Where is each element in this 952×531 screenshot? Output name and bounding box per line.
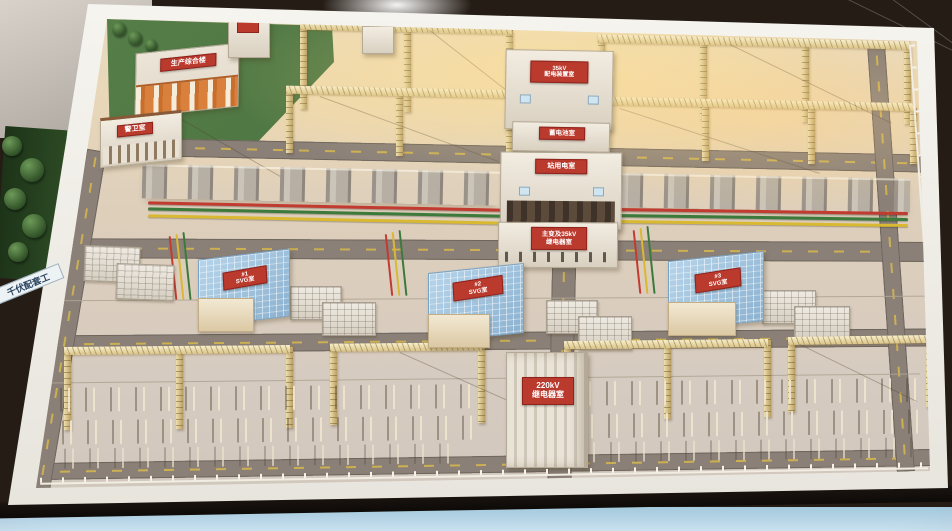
- guard-house-windows: [103, 139, 179, 165]
- transformer-row-east: [618, 173, 911, 213]
- transformer-relay-building: 主变及35kV 继电器室: [498, 222, 618, 269]
- sign-text: 站用电室: [547, 163, 575, 171]
- substation-yard: 生产综合楼 警卫室 35kV 配电装置室 蓄电池室 站用电室: [0, 0, 952, 531]
- switchgear-row: [558, 409, 920, 438]
- lattice-tower: [286, 89, 293, 153]
- switchgear-row: [62, 415, 480, 444]
- sign-line2: 继电器室: [546, 238, 572, 245]
- lattice-tower: [702, 103, 709, 161]
- relay-220kv-building: 220kV 继电器室: [506, 352, 588, 468]
- station-power-building: 站用电室: [500, 151, 623, 230]
- sign-text: 警卫室: [125, 125, 146, 135]
- relay-220kv-sign: 220kV 继电器室: [522, 377, 574, 405]
- equipment-rack: [322, 302, 376, 336]
- lattice-tower: [764, 339, 771, 417]
- svg1-sign: #1 SVG室: [223, 265, 268, 291]
- gantry-beam: [596, 97, 916, 112]
- tree: [128, 31, 142, 45]
- tree: [4, 188, 26, 210]
- svg3-building-wall: [668, 302, 736, 336]
- lattice-tower: [300, 25, 307, 109]
- tree: [2, 136, 22, 156]
- lattice-tower: [404, 28, 411, 112]
- switchgear-building: 35kV 配电装置室: [504, 49, 613, 131]
- admin-building-sign: 生产综合楼: [160, 53, 216, 72]
- transformer-row-west: [142, 164, 501, 205]
- tree: [8, 242, 28, 262]
- substation-model-photo: 生产综合楼 警卫室 35kV 配电装置室 蓄电池室 站用电室: [0, 0, 952, 531]
- svg2-building-wall: [428, 314, 490, 348]
- tree: [112, 22, 126, 36]
- gantry-beam: [64, 345, 290, 355]
- svg1-building-wall: [198, 298, 254, 332]
- window: [519, 187, 530, 196]
- svg3-sign: #3 SVG室: [695, 267, 742, 293]
- lattice-tower: [808, 106, 815, 164]
- sign-text: 生产综合楼: [171, 57, 206, 68]
- sign-line2: SVG室: [469, 287, 488, 296]
- guard-house: 警卫室: [100, 110, 182, 169]
- relay-building-windows: [505, 252, 611, 263]
- window: [593, 187, 604, 196]
- admin-building: 生产综合楼: [134, 42, 239, 117]
- busbar-yellow: [612, 220, 908, 227]
- tree: [145, 39, 157, 51]
- tree: [20, 158, 44, 182]
- battery-building: 蓄电池室: [512, 121, 611, 153]
- battery-building-sign: 蓄电池室: [539, 127, 585, 141]
- window: [520, 94, 531, 103]
- sign-line2: SVG室: [709, 279, 728, 288]
- tree: [22, 214, 46, 238]
- small-outbuilding: [362, 26, 394, 54]
- lattice-tower: [478, 343, 485, 423]
- switchgear-row: [556, 378, 920, 406]
- sign-text: 蓄电池室: [549, 130, 575, 137]
- sign-line2: 继电器室: [532, 391, 564, 400]
- svg2-sign: #2 SVG室: [453, 275, 504, 302]
- transformer-relay-sign: 主变及35kV 继电器室: [531, 227, 587, 250]
- road-dashes: [54, 247, 910, 253]
- switchgear-row: [60, 384, 480, 412]
- equipment-rack: [794, 306, 850, 340]
- sign-line2: 配电装置室: [544, 72, 574, 79]
- equipment-rack: [115, 263, 174, 301]
- sign-line2: SVG室: [236, 276, 255, 286]
- window: [588, 96, 599, 105]
- switchgear-building-sign: 35kV 配电装置室: [530, 60, 588, 83]
- guard-house-sign: 警卫室: [117, 122, 153, 138]
- station-power-sign: 站用电室: [535, 159, 587, 174]
